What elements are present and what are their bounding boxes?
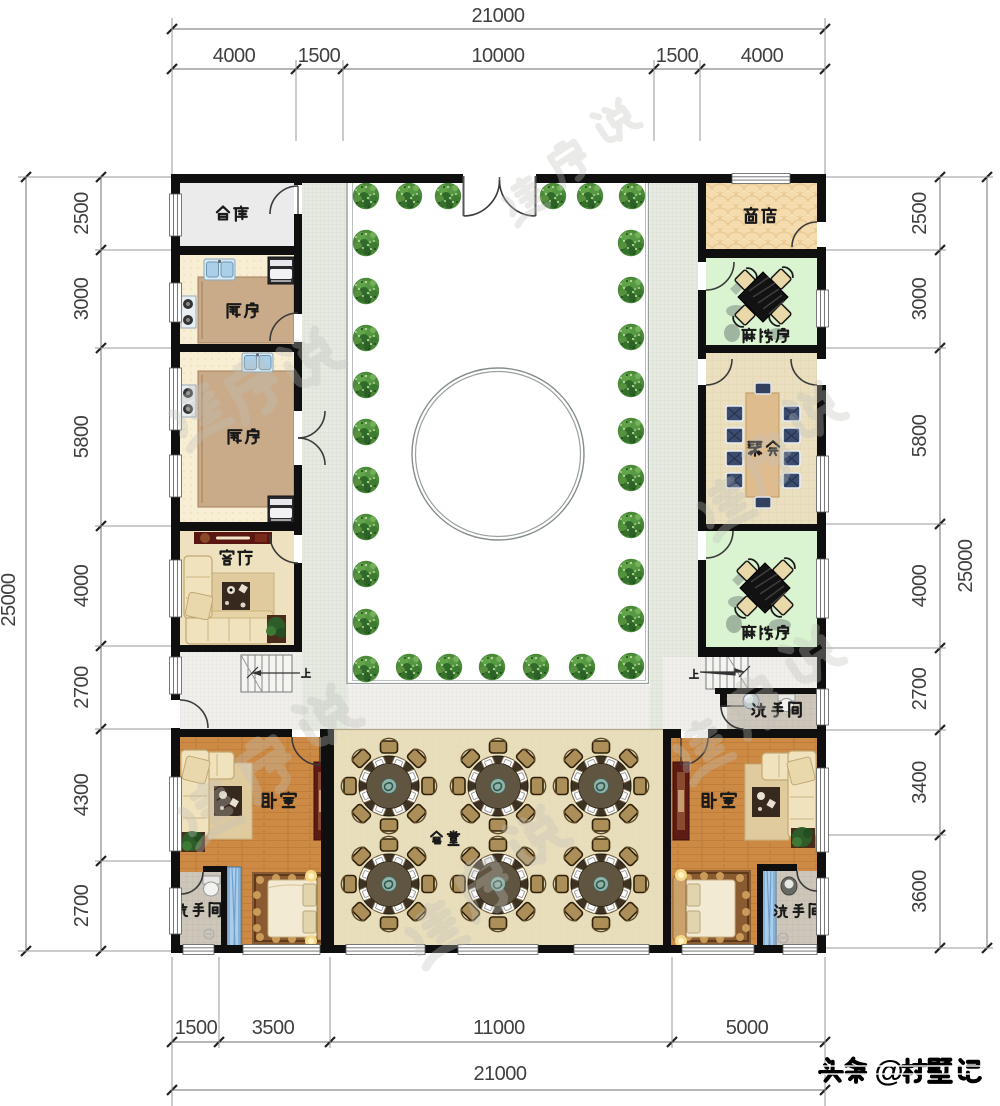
svg-text:1500: 1500 (656, 45, 699, 67)
svg-text:4000: 4000 (741, 45, 784, 67)
svg-text:3400: 3400 (909, 761, 931, 804)
svg-text:2700: 2700 (71, 884, 93, 927)
svg-text:4000: 4000 (213, 45, 256, 67)
svg-text:5800: 5800 (71, 415, 93, 458)
svg-text:5800: 5800 (909, 414, 931, 457)
svg-text:@: @ (874, 1055, 903, 1088)
svg-text:4000: 4000 (71, 564, 93, 607)
svg-text:3600: 3600 (909, 870, 931, 913)
svg-text:3000: 3000 (909, 277, 931, 320)
svg-text:5000: 5000 (726, 1017, 769, 1039)
svg-text:2700: 2700 (909, 667, 931, 710)
svg-text:2500: 2500 (71, 192, 93, 235)
svg-text:1500: 1500 (175, 1017, 218, 1039)
svg-text:3000: 3000 (71, 277, 93, 320)
svg-text:3500: 3500 (252, 1017, 295, 1039)
svg-text:1500: 1500 (298, 45, 341, 67)
svg-text:2700: 2700 (71, 666, 93, 709)
svg-text:10000: 10000 (471, 45, 524, 67)
svg-text:4300: 4300 (71, 773, 93, 816)
svg-text:2500: 2500 (909, 192, 931, 235)
svg-text:21000: 21000 (473, 1063, 526, 1085)
svg-text:25000: 25000 (0, 573, 20, 626)
svg-text:25000: 25000 (955, 539, 977, 592)
svg-text:21000: 21000 (471, 5, 524, 27)
svg-text:4000: 4000 (909, 564, 931, 607)
svg-text:11000: 11000 (473, 1017, 525, 1039)
